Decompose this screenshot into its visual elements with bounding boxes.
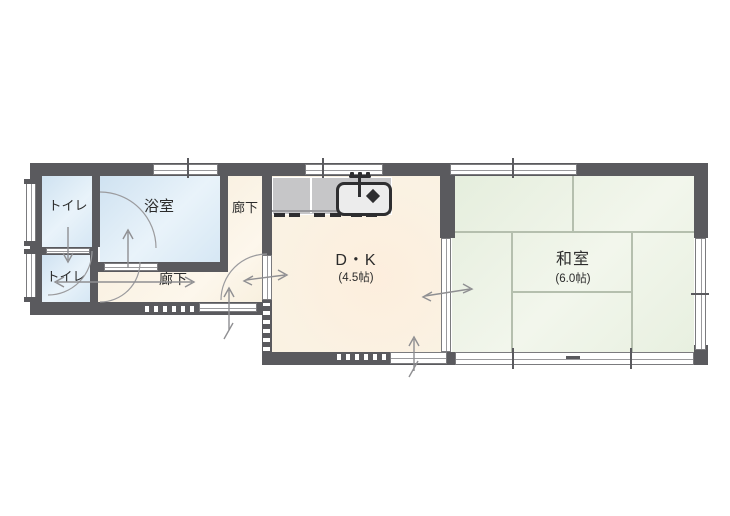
window-tick (512, 158, 514, 178)
cabinet-dash (351, 213, 362, 217)
door-entrance (199, 303, 257, 312)
window-center-dash (566, 356, 580, 359)
window-tick (512, 348, 514, 369)
label-dk: D・K (320, 252, 392, 270)
sliding-door-dk-washitsu (441, 238, 451, 352)
floorplan-canvas: トイレ トイレ 浴室 廊下 廊下 D・K (4.5帖) 和室 (6.0帖) (0, 0, 730, 516)
wall-bath-right (220, 176, 228, 262)
cabinet-dash (366, 213, 377, 217)
tatami-seam-vertical-topband (572, 175, 574, 232)
door-hallway-dk (262, 255, 272, 300)
faucet-knob (350, 172, 354, 176)
cabinet-dash (330, 213, 341, 217)
sill-nub (24, 297, 38, 302)
wall-washitsu-right-upper (694, 176, 708, 238)
window-tick (630, 348, 632, 369)
wall-hall-dk-upper (262, 176, 272, 255)
hatch-dk-bottom-strip (337, 354, 389, 360)
window-tick (691, 293, 709, 295)
label-toilet-lower: トイレ (40, 270, 92, 284)
sill-nub (24, 179, 38, 184)
window-top-bathroom (153, 164, 218, 175)
hatch-dk-left-strip (263, 303, 270, 351)
kitchen-counter-seam (310, 177, 312, 213)
window-left-lower (26, 253, 36, 301)
window-tick (322, 158, 324, 178)
cabinet-dash (274, 213, 285, 217)
door-bathroom (104, 263, 158, 271)
kitchen-sink (336, 182, 392, 216)
window-left-upper (26, 183, 36, 243)
faucet-knob (366, 172, 370, 176)
cabinet-dash (314, 213, 325, 217)
door-toilets (46, 248, 90, 254)
label-washitsu-size: (6.0帖) (538, 273, 608, 286)
window-tick (187, 158, 189, 178)
hatch-entrance-strip (145, 306, 199, 312)
faucet-pipe (358, 177, 361, 197)
label-washitsu: 和室 (538, 251, 608, 269)
tatami-seam-horizontal-mid (511, 291, 633, 293)
faucet-knob (358, 172, 362, 176)
window-top-kitchen (305, 164, 383, 175)
sill-nub (24, 249, 38, 254)
label-dk-size: (4.5帖) (320, 272, 392, 285)
cabinet-dash (289, 213, 300, 217)
wall-dk-washitsu-post (440, 176, 455, 238)
label-toilet-upper: トイレ (42, 199, 94, 213)
label-bathroom: 浴室 (128, 199, 190, 216)
label-hallway-main: 廊下 (146, 272, 200, 287)
window-dk-bottom (390, 352, 447, 364)
label-hallway-upper: 廊下 (226, 201, 264, 215)
room-bathroom (100, 176, 220, 262)
sill-nub (24, 241, 38, 246)
